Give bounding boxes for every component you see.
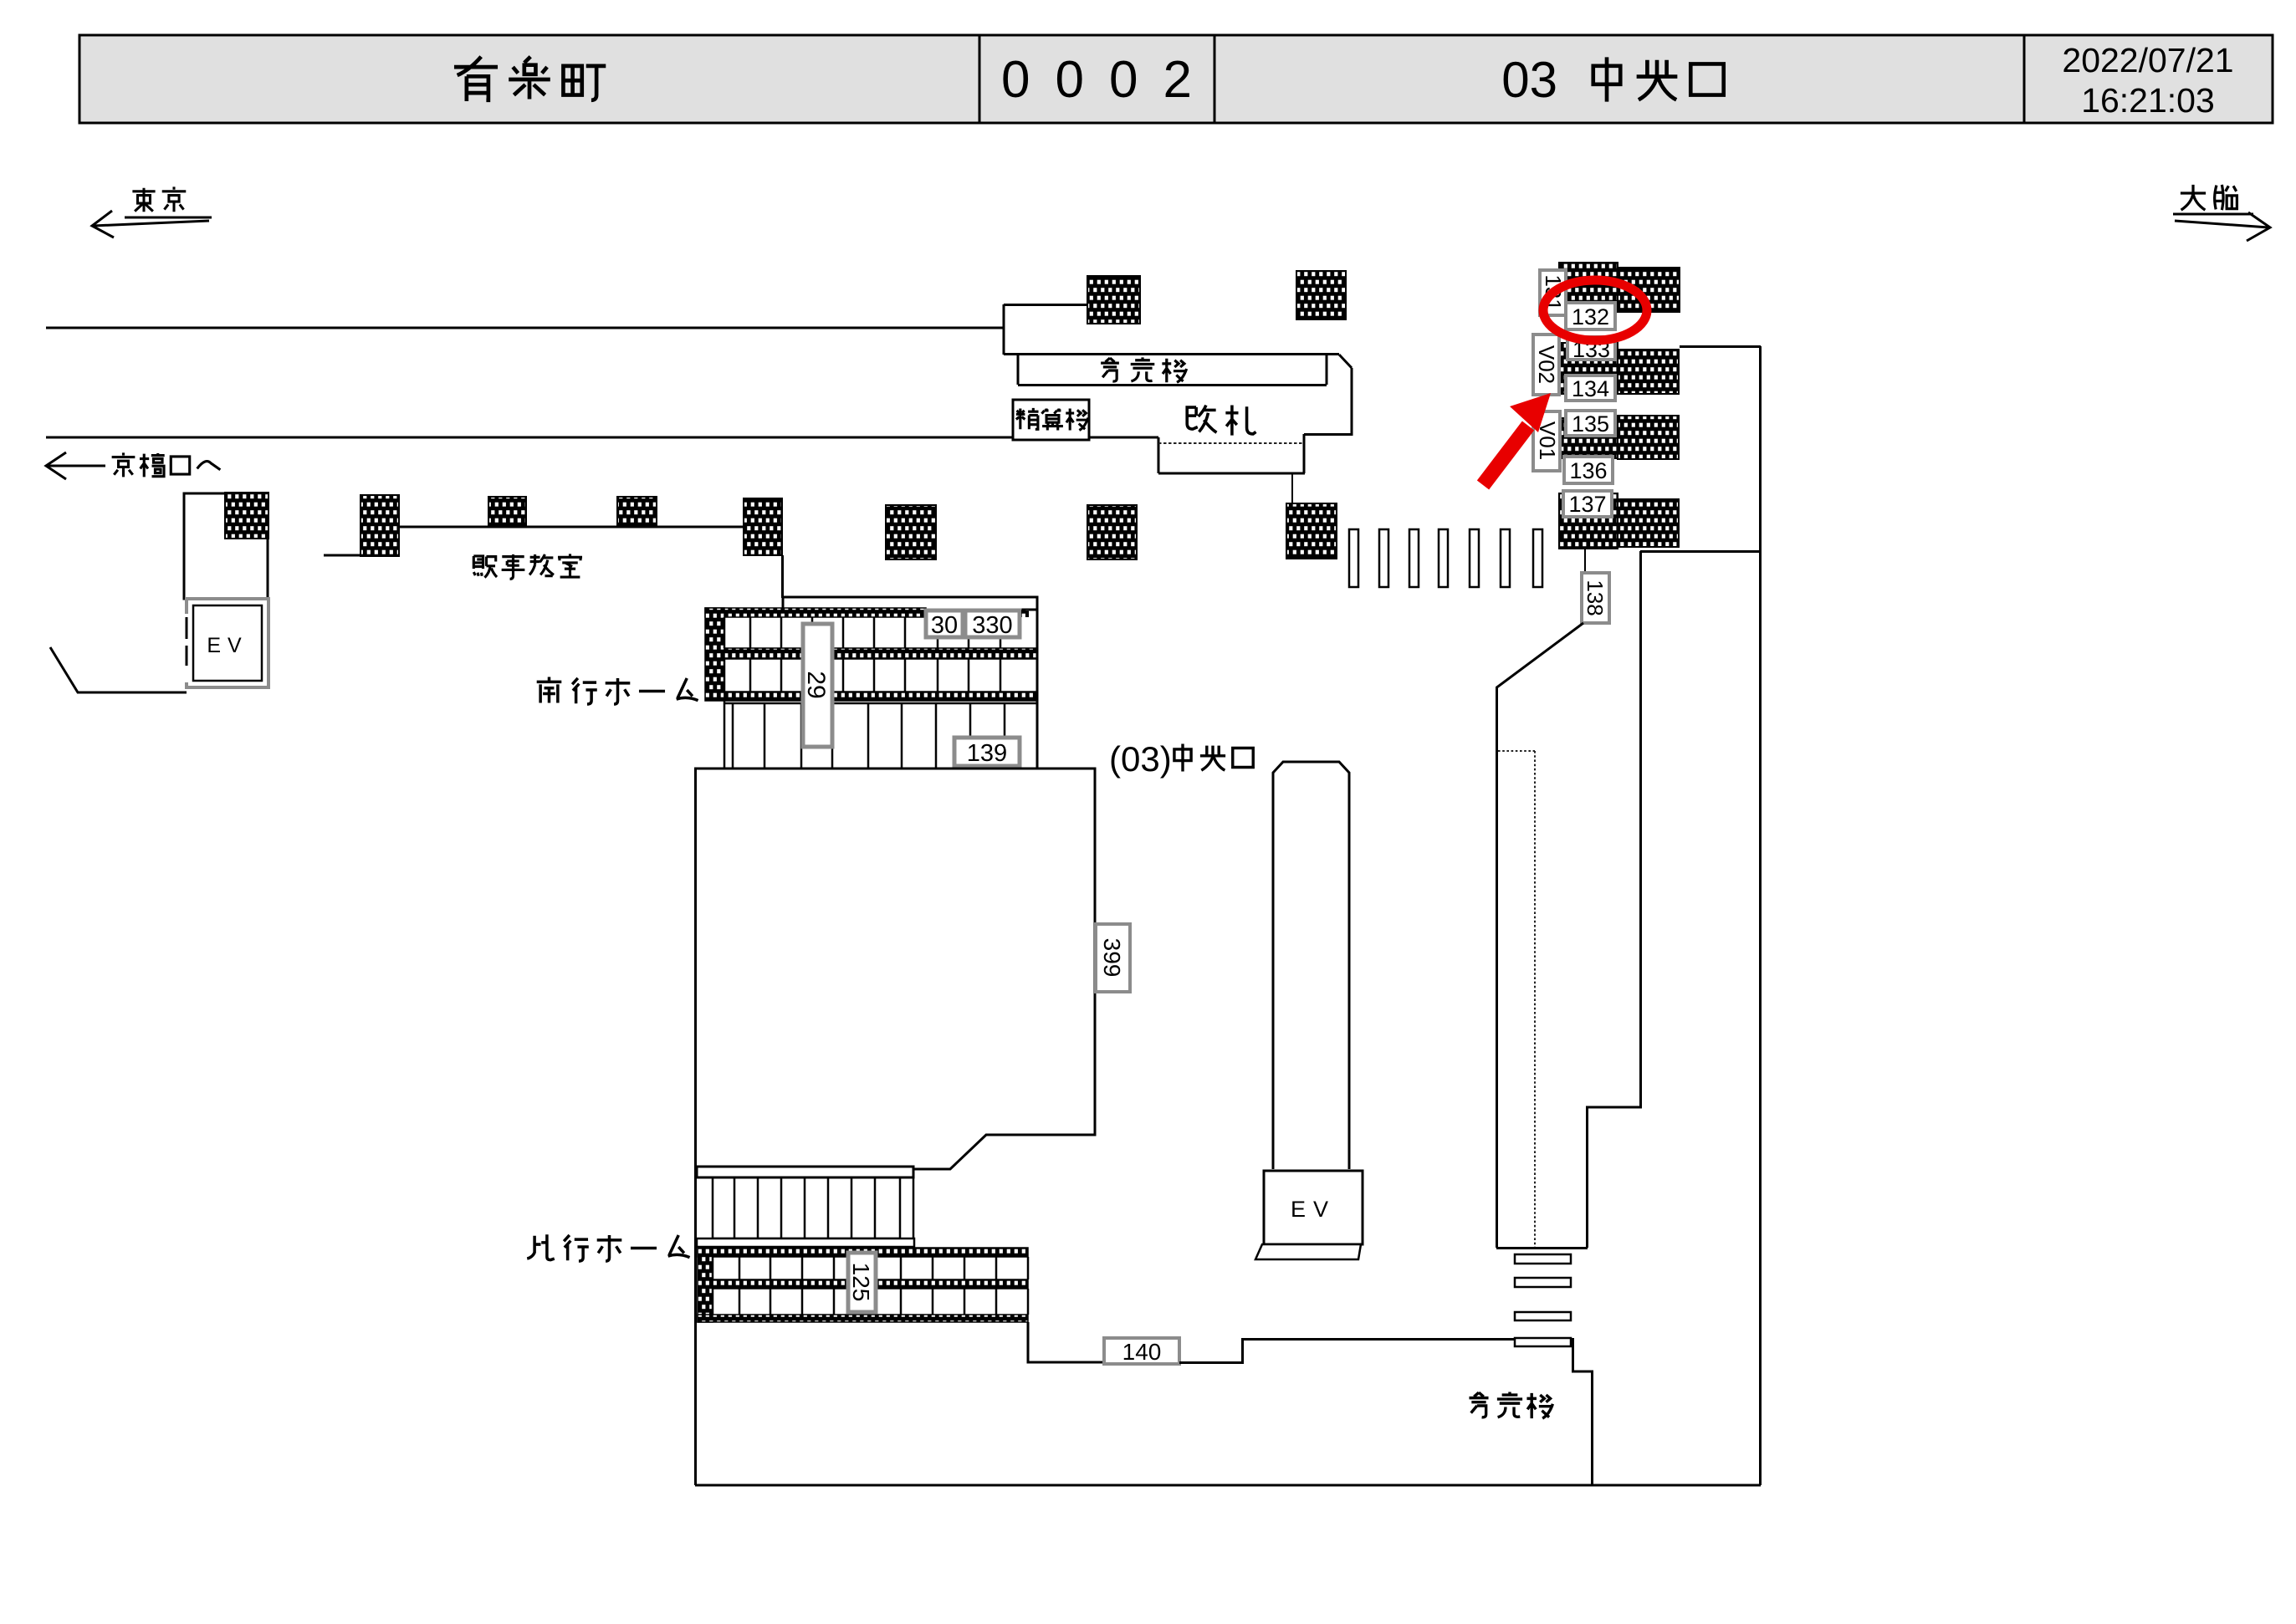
svg-text:134: 134	[1572, 376, 1609, 401]
svg-text:399: 399	[1099, 938, 1125, 978]
svg-text:125: 125	[848, 1263, 874, 1302]
svg-text:EV: EV	[207, 634, 248, 657]
svg-text:138: 138	[1583, 580, 1608, 615]
svg-text:330: 330	[972, 612, 1012, 639]
svg-text:2022/07/21: 2022/07/21	[2062, 41, 2233, 79]
svg-text:30: 30	[931, 612, 958, 639]
svg-text:137: 137	[1568, 492, 1606, 517]
svg-text:132: 132	[1572, 304, 1609, 329]
svg-text:29: 29	[802, 671, 830, 698]
svg-text:V02: V02	[1534, 345, 1559, 384]
svg-text:(03): (03)	[1109, 739, 1172, 779]
svg-text:16:21:03: 16:21:03	[2081, 81, 2215, 120]
svg-text:EV: EV	[1291, 1197, 1336, 1222]
svg-text:0002: 0002	[1001, 51, 1217, 109]
svg-text:139: 139	[967, 740, 1007, 767]
svg-text:140: 140	[1122, 1339, 1162, 1365]
svg-text:135: 135	[1572, 411, 1609, 437]
svg-text:03: 03	[1501, 52, 1557, 108]
svg-text:136: 136	[1569, 458, 1607, 483]
